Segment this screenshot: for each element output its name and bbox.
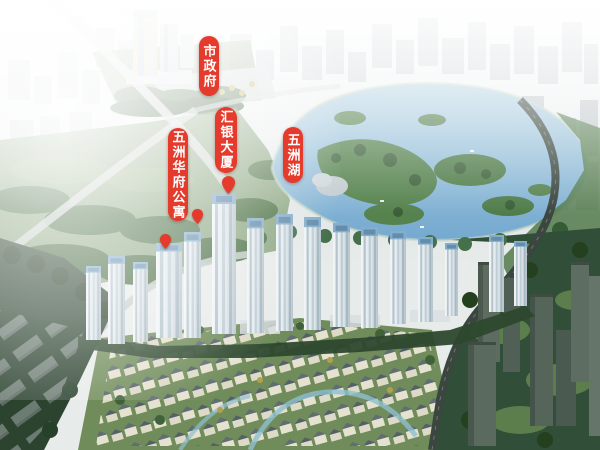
label-wuzhou-lake: 五洲湖 — [283, 127, 303, 183]
aerial-rendering: 市政府 汇银大厦 五洲华府公寓 五洲湖 — [0, 0, 600, 450]
label-huiyin-tower: 汇银大厦 — [215, 107, 237, 173]
scene-artwork — [0, 0, 600, 450]
map-pin-icon — [192, 209, 203, 224]
map-pin-icon — [222, 176, 235, 194]
label-city-government: 市政府 — [199, 36, 219, 96]
map-pin-icon — [160, 234, 171, 249]
label-wuzhou-huafu-apartment: 五洲华府公寓 — [168, 128, 188, 221]
